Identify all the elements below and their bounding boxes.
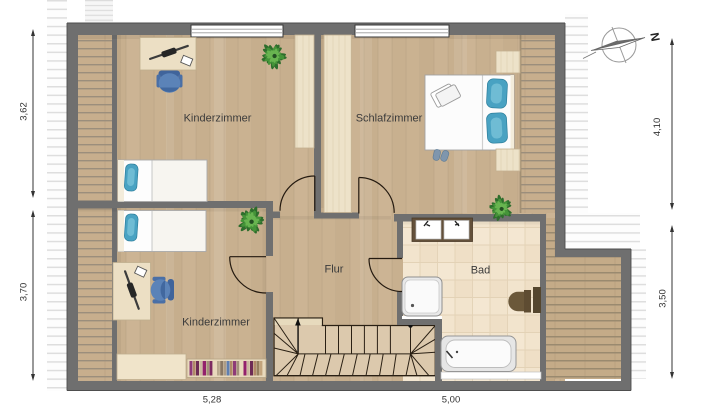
svg-text:Schlafzimmer: Schlafzimmer: [356, 113, 423, 125]
svg-text:Kinderzimmer: Kinderzimmer: [184, 113, 252, 125]
svg-text:3,62: 3,62: [19, 102, 30, 121]
svg-text:4,10: 4,10: [652, 118, 663, 137]
svg-text:Kinderzimmer: Kinderzimmer: [182, 317, 250, 329]
svg-text:3,70: 3,70: [19, 283, 30, 302]
svg-text:Bad: Bad: [471, 265, 491, 277]
svg-text:Flur: Flur: [325, 264, 344, 276]
svg-text:3,50: 3,50: [658, 289, 669, 308]
svg-text:5,28: 5,28: [203, 395, 222, 405]
svg-text:5,00: 5,00: [442, 395, 461, 405]
